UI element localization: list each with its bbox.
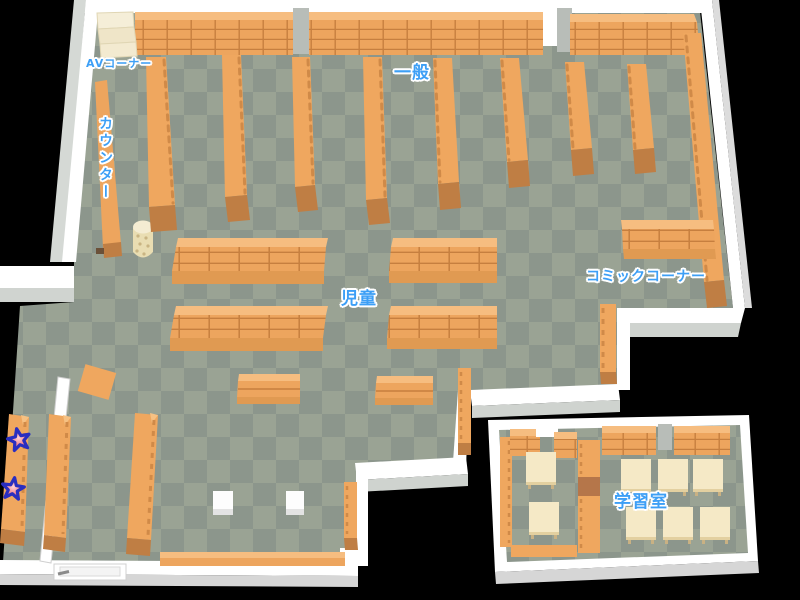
- comic-step-wall: [618, 308, 745, 323]
- area-label-counter: カウンター: [95, 116, 115, 201]
- low-shelf-bank: [621, 220, 716, 259]
- study-table: [663, 507, 693, 544]
- white-box: [286, 491, 304, 515]
- area-label-av-corner: AVコーナー: [86, 55, 152, 71]
- study-table: [700, 507, 730, 544]
- low-shelf-bank: [389, 238, 497, 283]
- pillar: [658, 424, 672, 450]
- shelf-bank: [510, 429, 540, 456]
- wall-low-shelf: [511, 545, 577, 557]
- low-shelf-bank: [172, 238, 328, 284]
- small-shelf: [375, 376, 433, 405]
- pillar: [557, 8, 572, 52]
- low-shelf-bank: [170, 306, 328, 351]
- top-wall: [84, 0, 707, 13]
- floor-map-canvas: [0, 0, 800, 600]
- wall-bookshelf: [458, 368, 471, 455]
- shelf-bank: [674, 426, 730, 455]
- area-label-comic-corner: コミックコーナー: [586, 266, 706, 286]
- low-shelf-bank: [387, 306, 497, 349]
- av-corner-tables: [97, 12, 137, 58]
- shelf-bank: [135, 12, 293, 55]
- divider-shelf: [578, 440, 600, 553]
- study-table: [526, 452, 556, 489]
- left-jut-wall: [0, 266, 74, 288]
- small-shelf: [237, 374, 300, 404]
- wall-bookshelf: [600, 304, 617, 384]
- wall-low-shelf: [160, 552, 345, 566]
- area-label-general: 一般: [394, 58, 430, 83]
- study-table: [693, 459, 723, 496]
- shelf-bank: [309, 12, 543, 55]
- area-label-children: 児童: [341, 284, 377, 309]
- wall-bookshelf: [344, 482, 358, 550]
- pillar: [293, 8, 309, 54]
- shelf-bank: [554, 432, 577, 458]
- study-table: [529, 502, 559, 539]
- white-box: [213, 491, 233, 515]
- entrance-door: [54, 564, 126, 580]
- shelf-bank: [602, 426, 656, 455]
- spinner-rack: [133, 221, 153, 258]
- library-floor-map: AVコーナー 一般 カウンター 児童 コミックコーナー 学習室: [0, 0, 800, 600]
- top-shelf-banks: [135, 8, 700, 55]
- shelf-bank: [570, 14, 700, 55]
- area-label-study-room: 学習室: [614, 487, 668, 512]
- study-table: [626, 507, 656, 544]
